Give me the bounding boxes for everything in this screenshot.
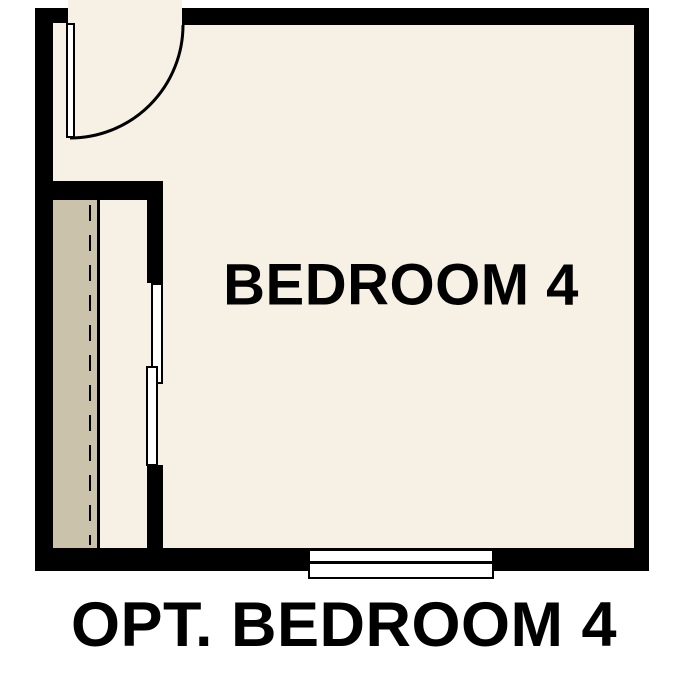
closet-jamb-lower <box>147 465 163 548</box>
closet-jamb-upper <box>147 200 163 283</box>
wall-top <box>182 8 649 25</box>
plan-caption: OPT. BEDROOM 4 <box>71 589 617 661</box>
door-swing-arc <box>60 18 195 148</box>
window-divider-line <box>308 561 494 564</box>
floorplan-screenshot: { "floorplan": { "room_label": "BEDROOM … <box>0 0 687 687</box>
wall-left <box>35 8 53 571</box>
closet-bypass-door-inner <box>146 366 158 466</box>
closet-wall-top <box>53 181 163 200</box>
wall-right <box>634 8 649 571</box>
closet-rod-dashed-line <box>89 205 91 545</box>
window <box>308 549 494 579</box>
room-label: BEDROOM 4 <box>223 252 579 319</box>
closet-shelf-line <box>97 200 100 548</box>
